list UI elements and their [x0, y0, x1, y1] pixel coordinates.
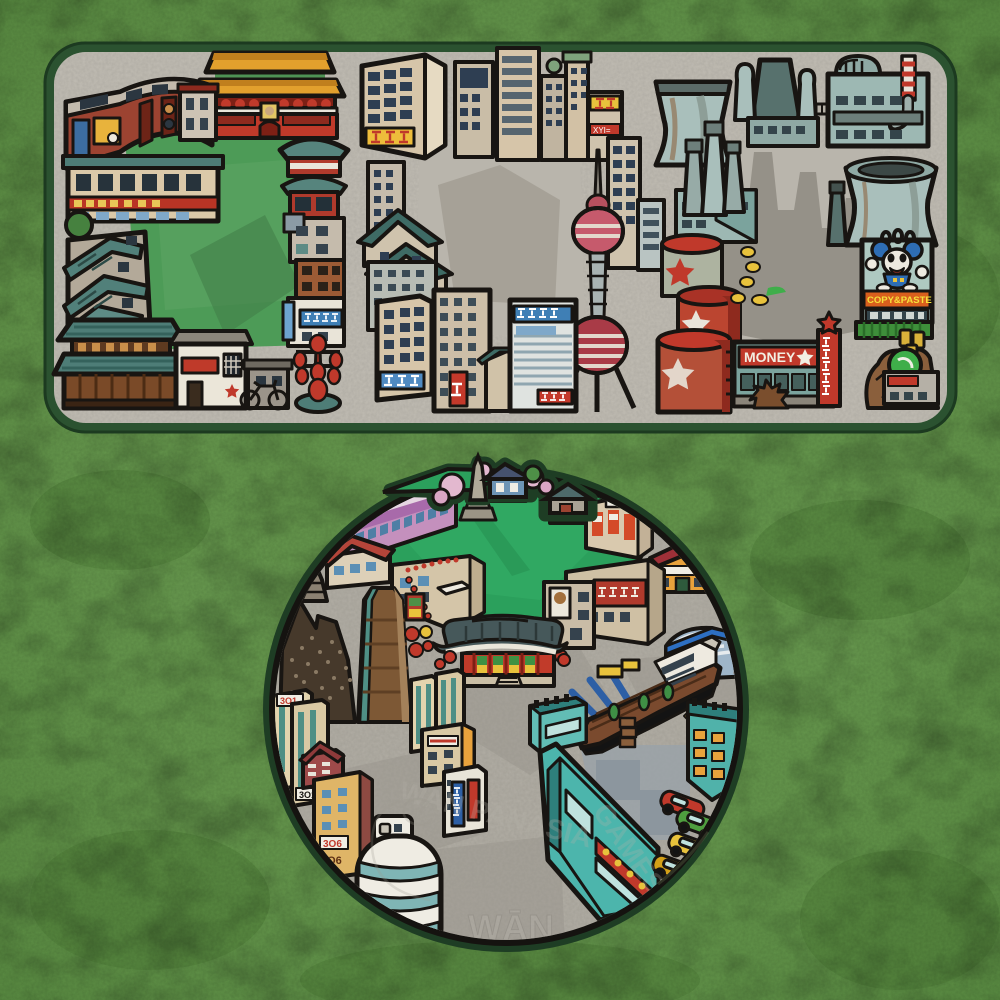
svg-text:COPY&PASTE: COPY&PASTE [867, 295, 932, 306]
svg-text:XYI=: XYI= [593, 126, 611, 135]
svg-text:MONEY: MONEY [744, 349, 796, 365]
svg-text:3O6: 3O6 [323, 839, 342, 850]
